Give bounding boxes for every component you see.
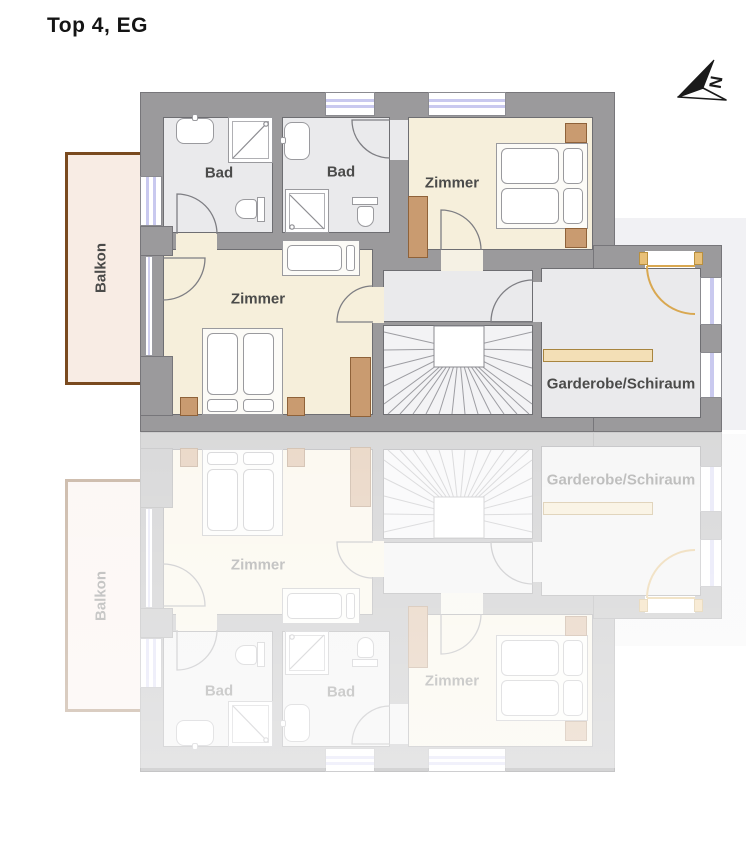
floorplan: Balkon Bad Bad Zimmer Zimmer Garderobe/S… [0, 0, 746, 432]
door-bad-right [352, 120, 390, 158]
shower-tray [289, 635, 325, 671]
bed-mattress [207, 469, 238, 531]
nightstand [565, 721, 587, 741]
window-left [140, 638, 162, 688]
door-opening-entrance [645, 596, 695, 613]
double-bed-frame [496, 635, 588, 721]
plan-linework [0, 0, 746, 432]
room-label-zimmer-main: Zimmer [231, 557, 285, 574]
bed-pillow [346, 593, 355, 619]
wall-main-slab [140, 432, 615, 772]
room-stairwell [383, 449, 533, 539]
sink-tap [192, 743, 198, 750]
sink [176, 720, 214, 746]
entrance-door-swing [647, 550, 695, 598]
double-bed-frame [202, 449, 283, 536]
nightstand [180, 448, 198, 467]
stair-treads [384, 450, 532, 532]
radiator [350, 447, 371, 507]
floorplan-reflection: Balkon Bad Bad Zimmer Zimmer Garderobe/S… [0, 432, 746, 864]
door-opening-bad-right [390, 704, 408, 744]
bed-mattress [243, 469, 274, 531]
sink-tap [280, 720, 286, 727]
door-swings [163, 120, 533, 322]
bed-pillow [243, 452, 274, 465]
door-balcony [163, 564, 205, 606]
window-garderobe-1 [700, 539, 722, 587]
shower-tray [232, 705, 269, 743]
window-top-2 [428, 748, 506, 772]
entrance-door-swing [647, 266, 695, 314]
room-label-balkon: Balkon [93, 571, 110, 621]
neighbour-shadow [615, 434, 746, 646]
door-bad-left [177, 194, 217, 234]
door-bad-left [177, 630, 217, 670]
window-garderobe-2 [700, 466, 722, 512]
wardrobe-bar [543, 502, 653, 515]
toilet-tank [352, 659, 378, 667]
door-garderobe [491, 542, 533, 584]
entrance-door-post [694, 599, 703, 612]
door-zimmer-main [337, 286, 373, 322]
bed-mattress [501, 640, 559, 676]
toilet-tank [257, 642, 265, 667]
door-balcony [163, 258, 205, 300]
room-label-bad-right: Bad [327, 164, 355, 181]
bed-mattress [501, 680, 559, 716]
door-zimmer-top [441, 614, 481, 654]
bed-pillow [563, 640, 583, 676]
room-label-garderobe: Garderobe/Schiraum [547, 472, 695, 489]
room-bad-right [282, 631, 390, 747]
wall-pier-lower [140, 448, 173, 508]
room-balcony [65, 479, 140, 712]
door-bad-right [352, 706, 390, 744]
stair-void [434, 326, 484, 367]
toilet [357, 637, 374, 658]
floorplan-page: Top 4, EG N [0, 0, 746, 768]
sink [284, 704, 310, 742]
nightstand [287, 448, 305, 467]
door-garderobe [491, 280, 533, 322]
bed-pillow [207, 452, 238, 465]
door-opening-bad-left [176, 614, 217, 631]
bed-mattress [287, 593, 342, 619]
door-zimmer-top [441, 210, 481, 250]
room-zimmer-top [408, 614, 593, 747]
floorplan-reflection-area: Balkon Bad Bad Zimmer Zimmer Garderobe/S… [0, 432, 746, 864]
balcony-door-glass [145, 508, 153, 608]
single-bed-frame [282, 588, 360, 624]
room-label-balkon: Balkon [93, 243, 110, 293]
room-label-zimmer-top: Zimmer [425, 175, 479, 192]
wall-wing-slab [593, 432, 722, 619]
door-swings [163, 542, 533, 744]
room-label-zimmer-main: Zimmer [231, 291, 285, 308]
door-opening-zimmer-top [441, 593, 483, 614]
door-opening-garderobe [533, 542, 542, 582]
room-hall [383, 542, 533, 594]
room-label-bad-right: Bad [327, 684, 355, 701]
radiator [408, 606, 428, 668]
shower-details [233, 122, 324, 229]
door-opening-zimmer-main [372, 541, 384, 577]
reflection-fade-overlay [0, 432, 746, 768]
room-label-bad-left: Bad [205, 683, 233, 700]
wall-pier-upper [140, 608, 173, 638]
shower-details [233, 635, 324, 742]
nightstand [565, 616, 587, 636]
room-garderobe [541, 446, 701, 596]
toilet [235, 645, 257, 665]
window-top-1 [325, 748, 375, 772]
door-zimmer-main [337, 542, 373, 578]
room-bad-left [163, 631, 273, 747]
room-label-zimmer-top: Zimmer [425, 673, 479, 690]
stair-void [434, 497, 484, 538]
room-zimmer-main [163, 449, 373, 615]
shower [285, 631, 329, 675]
plan-linework [0, 432, 746, 864]
room-label-bad-left: Bad [205, 165, 233, 182]
entrance-door-post [639, 599, 648, 612]
shower [228, 701, 273, 747]
room-label-garderobe: Garderobe/Schiraum [547, 376, 695, 393]
bed-pillow [563, 680, 583, 716]
